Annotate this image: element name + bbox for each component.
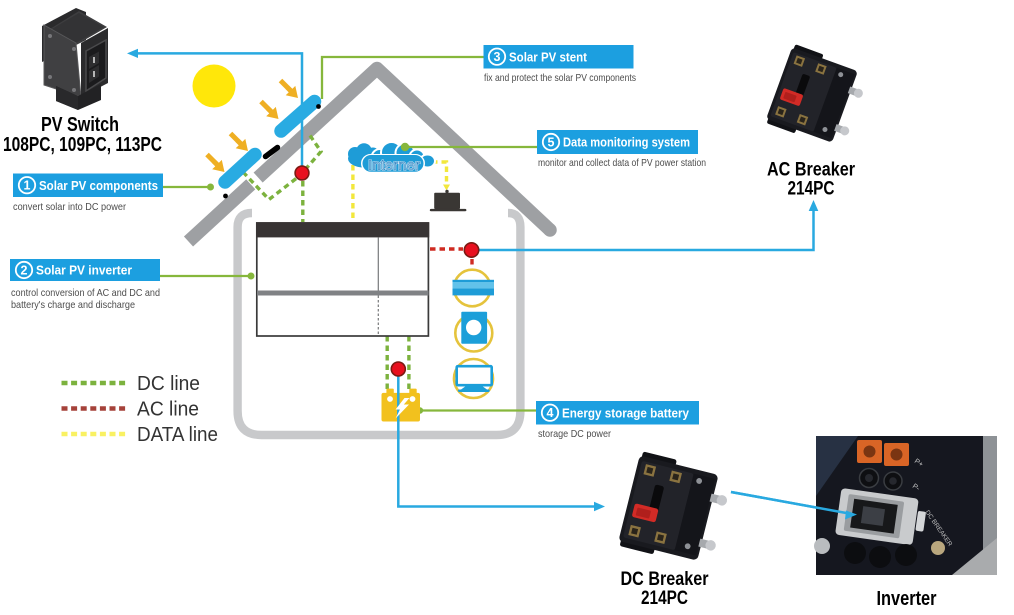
svg-text:108PC, 109PC, 113PC: 108PC, 109PC, 113PC <box>3 133 162 156</box>
svg-text:Energy storage battery: Energy storage battery <box>562 405 690 420</box>
svg-text:convert solar into DC power: convert solar into DC power <box>13 201 126 213</box>
svg-text:214PC: 214PC <box>788 178 835 200</box>
svg-text:control conversion of AC and D: control conversion of AC and DC and <box>11 287 160 299</box>
svg-text:Data monitoring system: Data monitoring system <box>563 135 690 150</box>
svg-text:storage DC power: storage DC power <box>538 428 611 440</box>
svg-text:monitor and collect data of PV: monitor and collect data of PV power sta… <box>538 157 706 169</box>
svg-text:Solar PV stent: Solar PV stent <box>509 49 588 64</box>
svg-text:5: 5 <box>548 135 555 149</box>
svg-text:3: 3 <box>494 50 501 64</box>
svg-text:Solar PV inverter: Solar PV inverter <box>36 263 132 278</box>
svg-text:DC line: DC line <box>137 372 200 395</box>
svg-text:DATA line: DATA line <box>137 423 218 446</box>
svg-text:AC line: AC line <box>137 398 199 421</box>
svg-text:battery's charge and discharge: battery's charge and discharge <box>11 299 135 311</box>
svg-text:Interner: Interner <box>368 158 420 174</box>
svg-text:2: 2 <box>21 263 28 277</box>
svg-text:1: 1 <box>24 179 31 193</box>
svg-text:214PC: 214PC <box>641 587 688 609</box>
svg-text:Solar PV components: Solar PV components <box>39 178 158 193</box>
svg-text:fix and protect the solar PV c: fix and protect the solar PV components <box>484 72 636 84</box>
svg-text:4: 4 <box>547 406 554 420</box>
svg-text:Inverter: Inverter <box>877 588 937 610</box>
